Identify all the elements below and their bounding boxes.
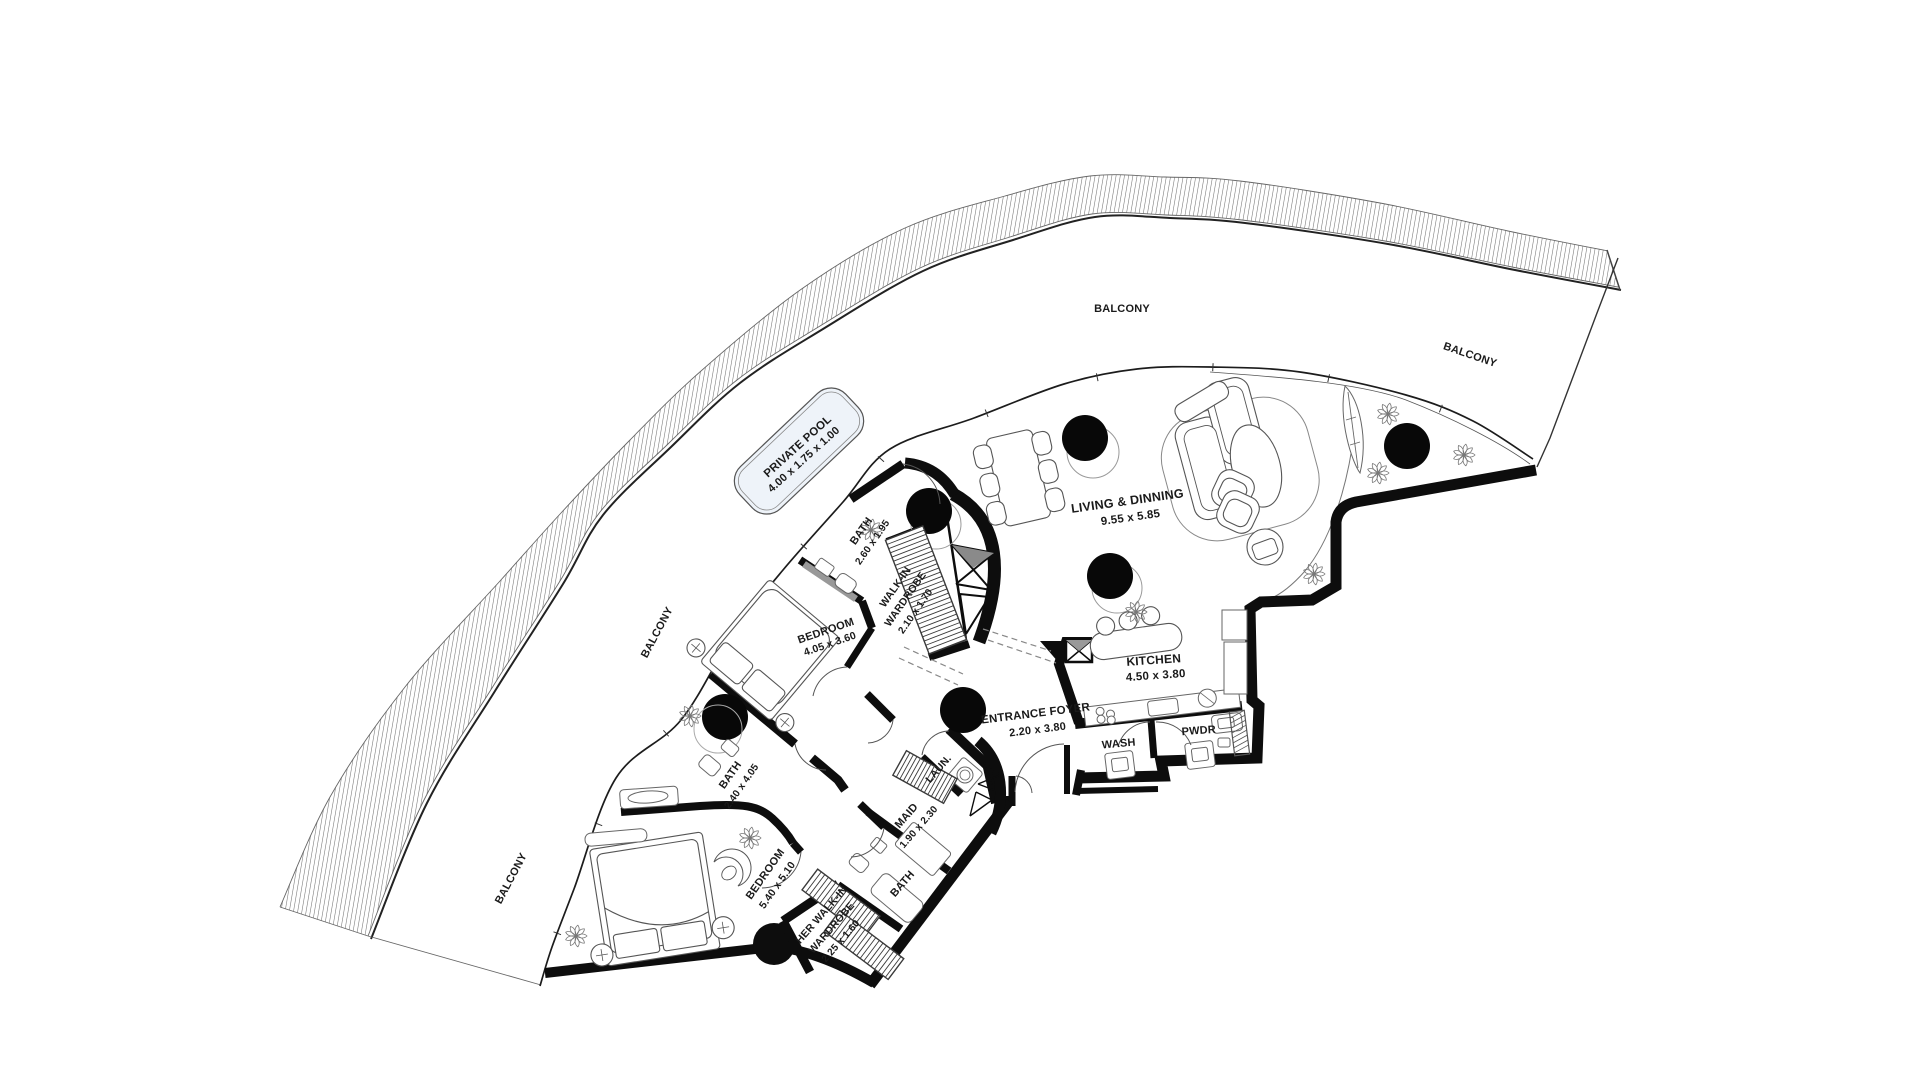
svg-text:BALCONY: BALCONY bbox=[1094, 303, 1150, 315]
svg-text:PWDR: PWDR bbox=[1181, 724, 1216, 738]
